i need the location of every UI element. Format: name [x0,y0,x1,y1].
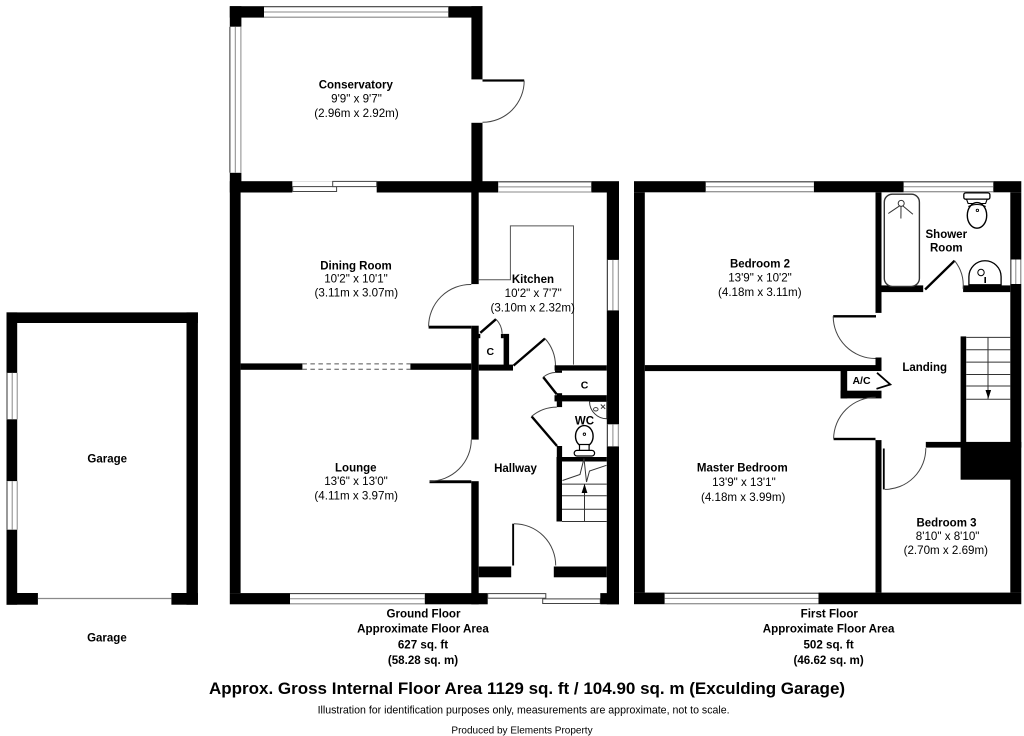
svg-text:First Floor: First Floor [801,607,859,620]
svg-text:(58.28 sq. m): (58.28 sq. m) [388,654,458,667]
svg-text:Kitchen: Kitchen [512,274,554,286]
svg-text:13'9" x 10'2": 13'9" x 10'2" [728,271,792,284]
svg-text:13'6" x 13'0": 13'6" x 13'0" [324,475,388,488]
svg-text:(3.11m x 3.07m): (3.11m x 3.07m) [315,287,399,300]
svg-text:(2.96m x 2.92m): (2.96m x 2.92m) [314,107,399,120]
svg-text:Garage: Garage [87,632,127,644]
svg-text:Approx. Gross Internal Floor A: Approx. Gross Internal Floor Area 1129 s… [209,679,845,698]
svg-text:Illustration for identificatio: Illustration for identification purposes… [318,704,730,716]
svg-text:Approximate Floor Area: Approximate Floor Area [763,623,895,636]
svg-text:Conservatory: Conservatory [319,80,394,92]
svg-text:(4.18m x 3.11m): (4.18m x 3.11m) [718,286,802,299]
svg-text:Hallway: Hallway [494,463,537,475]
svg-text:10'2" x 10'1": 10'2" x 10'1" [324,272,388,285]
svg-text:Lounge: Lounge [335,462,377,474]
svg-text:C: C [487,346,495,358]
svg-text:(3.10m x 2.32m): (3.10m x 2.32m) [490,301,575,314]
svg-text:10'2" x 7'7": 10'2" x 7'7" [505,287,562,300]
svg-text:8'10" x 8'10": 8'10" x 8'10" [916,530,980,543]
svg-text:Produced by Elements Property: Produced by Elements Property [451,725,592,736]
svg-text:Bedroom 2: Bedroom 2 [730,258,790,270]
svg-text:Room: Room [930,242,963,254]
svg-text:Shower: Shower [926,229,968,241]
svg-text:(2.70m x 2.69m): (2.70m x 2.69m) [904,544,989,557]
svg-text:C: C [581,379,589,391]
svg-text:13'9" x 13'1": 13'9" x 13'1" [712,476,776,489]
svg-text:(4.11m x 3.97m): (4.11m x 3.97m) [314,489,398,502]
svg-text:502 sq. ft: 502 sq. ft [803,639,853,652]
svg-text:Dining Room: Dining Room [320,260,392,272]
svg-text:627 sq. ft: 627 sq. ft [398,639,448,652]
svg-text:Ground Floor: Ground Floor [386,607,461,620]
svg-text:Landing: Landing [902,362,947,374]
svg-text:A/C: A/C [852,375,871,387]
svg-text:Bedroom 3: Bedroom 3 [916,518,976,530]
svg-text:Garage: Garage [87,453,127,465]
svg-text:Approximate Floor Area: Approximate Floor Area [357,623,489,636]
svg-text:9'9" x 9'7": 9'9" x 9'7" [331,93,382,106]
svg-text:(4.18m x 3.99m): (4.18m x 3.99m) [701,491,786,504]
svg-text:Master Bedroom: Master Bedroom [697,462,788,474]
svg-text:WC: WC [575,415,594,427]
svg-text:(46.62 sq. m): (46.62 sq. m) [793,654,863,667]
